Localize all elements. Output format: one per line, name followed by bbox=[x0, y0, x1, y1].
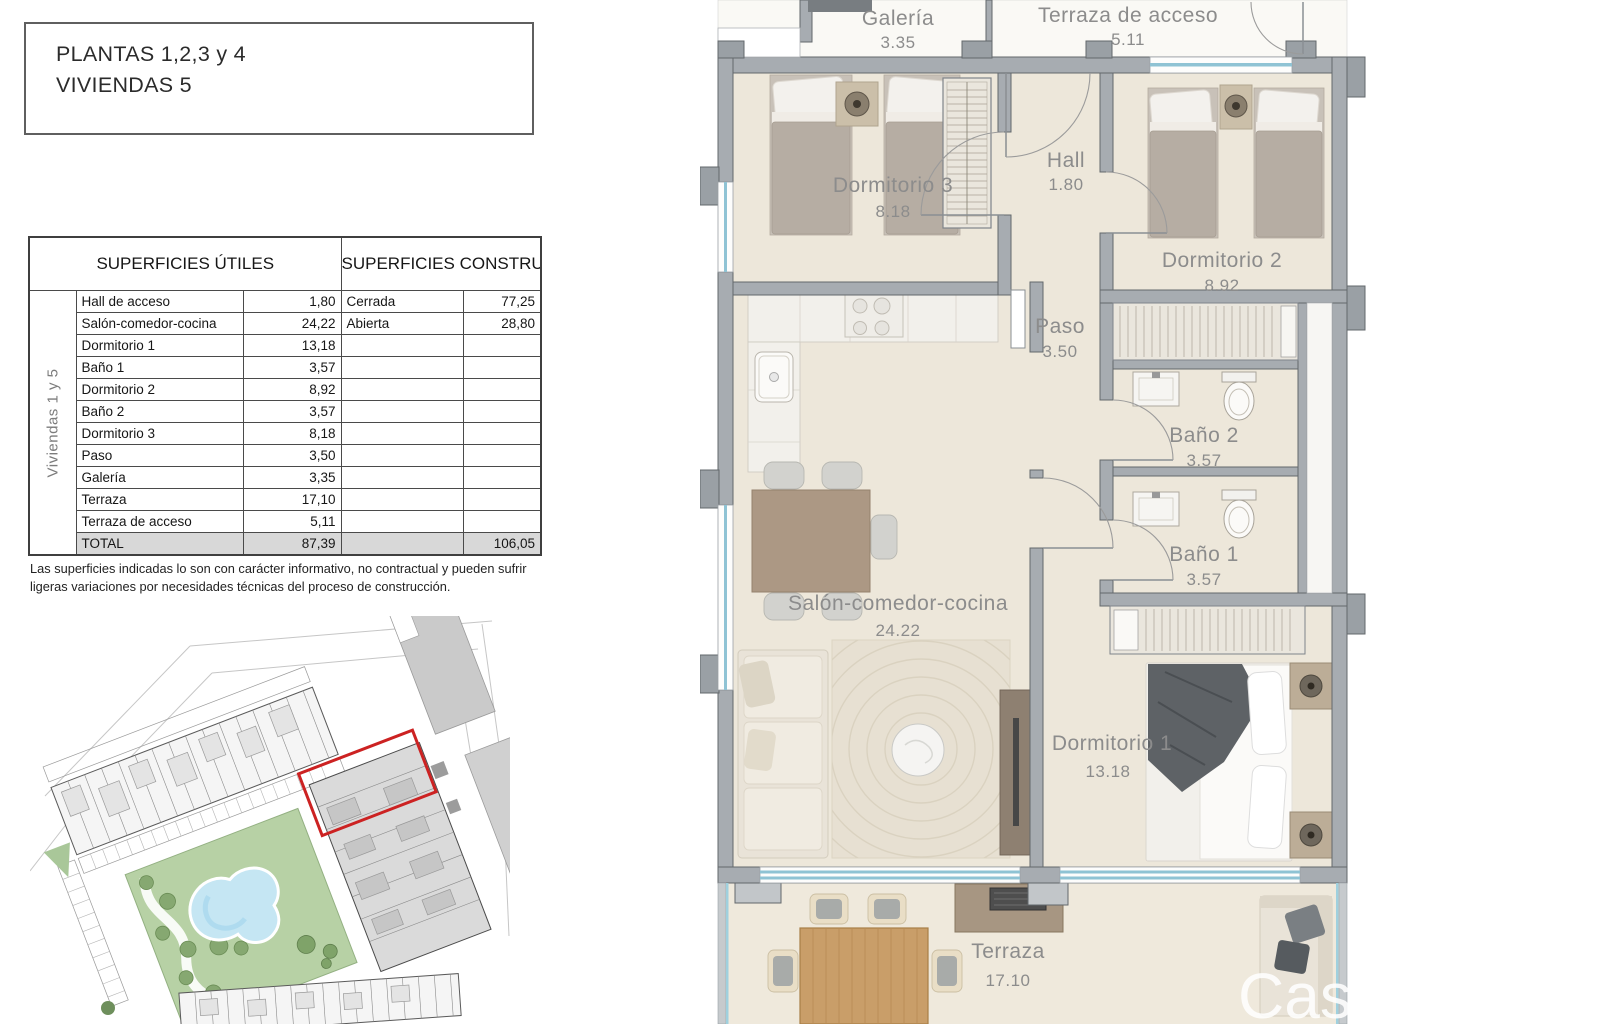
wardrobe-dormitorio3 bbox=[943, 78, 991, 228]
dining-table bbox=[752, 490, 870, 592]
row-name: Salón-comedor-cocina bbox=[76, 313, 243, 335]
label-terraza-acceso: Terraza de acceso bbox=[1038, 4, 1218, 27]
row-name: Terraza de acceso bbox=[76, 511, 243, 533]
row-name: Hall de acceso bbox=[76, 291, 243, 313]
row-cvalue bbox=[463, 489, 541, 511]
value-bano2: 3.57 bbox=[1186, 451, 1221, 470]
row-cname: Abierta bbox=[341, 313, 463, 335]
table-row: Baño 13,57 bbox=[29, 357, 541, 379]
label-galeria: Galería bbox=[862, 7, 934, 30]
row-cname bbox=[341, 423, 463, 445]
closet-dormitorio1 bbox=[1110, 606, 1305, 654]
row-value: 17,10 bbox=[243, 489, 341, 511]
row-cname bbox=[341, 511, 463, 533]
total-label: TOTAL bbox=[76, 533, 243, 556]
label-paso: Paso bbox=[1035, 315, 1085, 338]
row-name: Dormitorio 2 bbox=[76, 379, 243, 401]
title-line-1: PLANTAS 1,2,3 y 4 bbox=[56, 39, 532, 70]
row-cvalue: 77,25 bbox=[463, 291, 541, 313]
total-row: TOTAL 87,39 106,05 bbox=[29, 533, 541, 556]
row-cvalue bbox=[463, 467, 541, 489]
row-value: 3,35 bbox=[243, 467, 341, 489]
tv-unit bbox=[1000, 690, 1030, 855]
value-hall: 1.80 bbox=[1048, 175, 1083, 194]
row-value: 3,57 bbox=[243, 401, 341, 423]
row-name: Baño 2 bbox=[76, 401, 243, 423]
row-value: 13,18 bbox=[243, 335, 341, 357]
row-cvalue bbox=[463, 335, 541, 357]
side-label-cell: Viviendas 1 y 5 bbox=[29, 291, 76, 556]
label-terraza: Terraza bbox=[971, 940, 1045, 963]
row-cvalue bbox=[463, 511, 541, 533]
header-superficies-utiles: SUPERFICIES ÚTILES bbox=[29, 237, 341, 291]
table-row: Galería3,35 bbox=[29, 467, 541, 489]
value-dormitorio2: 8.92 bbox=[1204, 276, 1239, 295]
label-dormitorio1: Dormitorio 1 bbox=[1052, 732, 1172, 755]
terrace-table bbox=[800, 928, 928, 1024]
row-cvalue bbox=[463, 445, 541, 467]
row-cname bbox=[341, 401, 463, 423]
row-value: 24,22 bbox=[243, 313, 341, 335]
value-galeria: 3.35 bbox=[880, 33, 915, 52]
table-header-row: SUPERFICIES ÚTILES SUPERFICIES CONSTRUID… bbox=[29, 237, 541, 291]
areas-table: SUPERFICIES ÚTILES SUPERFICIES CONSTRUID… bbox=[28, 236, 542, 556]
sliding-door bbox=[760, 867, 1020, 883]
row-cname bbox=[341, 357, 463, 379]
row-cvalue bbox=[463, 357, 541, 379]
viviendas-side-label: Viviendas 1 y 5 bbox=[44, 368, 61, 477]
label-hall: Hall bbox=[1047, 149, 1085, 172]
row-name: Dormitorio 1 bbox=[76, 335, 243, 357]
row-cvalue bbox=[463, 423, 541, 445]
value-paso: 3.50 bbox=[1042, 342, 1077, 361]
toilet bbox=[1222, 490, 1256, 500]
table-row: Baño 23,57 bbox=[29, 401, 541, 423]
row-value: 3,50 bbox=[243, 445, 341, 467]
plan-title-box: PLANTAS 1,2,3 y 4 VIVIENDAS 5 bbox=[24, 22, 534, 135]
row-cvalue bbox=[463, 401, 541, 423]
total-empty-cell bbox=[341, 533, 463, 556]
row-cname: Cerrada bbox=[341, 291, 463, 313]
row-value: 1,80 bbox=[243, 291, 341, 313]
value-bano1: 3.57 bbox=[1186, 570, 1221, 589]
living-sofa bbox=[738, 650, 828, 858]
table-row: Salón-comedor-cocina24,22Abierta28,80 bbox=[29, 313, 541, 335]
row-cname bbox=[341, 467, 463, 489]
row-cname bbox=[341, 489, 463, 511]
title-line-2: VIVIENDAS 5 bbox=[56, 70, 532, 101]
table-row: Viviendas 1 y 5 Hall de acceso 1,80 Cerr… bbox=[29, 291, 541, 313]
row-name: Dormitorio 3 bbox=[76, 423, 243, 445]
sliding-door bbox=[1060, 867, 1300, 883]
row-cname bbox=[341, 335, 463, 357]
label-dormitorio2: Dormitorio 2 bbox=[1162, 249, 1282, 272]
value-salon: 24.22 bbox=[875, 621, 920, 640]
label-bano2: Baño 2 bbox=[1169, 424, 1239, 447]
row-value: 8,18 bbox=[243, 423, 341, 445]
label-dormitorio3: Dormitorio 3 bbox=[833, 174, 953, 197]
site-plan bbox=[30, 616, 510, 1024]
coffee-table bbox=[892, 724, 944, 776]
total-construidas-value: 106,05 bbox=[463, 533, 541, 556]
row-cvalue: 28,80 bbox=[463, 313, 541, 335]
label-bano1: Baño 1 bbox=[1169, 543, 1239, 566]
value-terraza-acceso: 5.11 bbox=[1111, 30, 1145, 49]
value-dormitorio3: 8.18 bbox=[875, 202, 910, 221]
row-value: 3,57 bbox=[243, 357, 341, 379]
table-row: Dormitorio 38,18 bbox=[29, 423, 541, 445]
row-name: Terraza bbox=[76, 489, 243, 511]
total-utiles-value: 87,39 bbox=[243, 533, 341, 556]
table-row: Paso3,50 bbox=[29, 445, 541, 467]
label-salon: Salón-comedor-cocina bbox=[788, 592, 1008, 615]
toilet bbox=[1222, 372, 1256, 382]
table-row: Terraza17,10 bbox=[29, 489, 541, 511]
floor-plan: Galería 3.35 Terraza de acceso 5.11 Dorm… bbox=[700, 0, 1600, 1024]
wardrobe-dormitorio2 bbox=[1113, 303, 1298, 360]
duct-void bbox=[1307, 303, 1332, 593]
tv-screen bbox=[1013, 718, 1019, 826]
value-terraza: 17.10 bbox=[985, 971, 1030, 990]
row-name: Baño 1 bbox=[76, 357, 243, 379]
tree-icon bbox=[101, 1001, 115, 1015]
row-value: 8,92 bbox=[243, 379, 341, 401]
table-row: Terraza de acceso5,11 bbox=[29, 511, 541, 533]
table-row: Dormitorio 113,18 bbox=[29, 335, 541, 357]
table-row: Dormitorio 28,92 bbox=[29, 379, 541, 401]
row-cvalue bbox=[463, 379, 541, 401]
row-name: Galería bbox=[76, 467, 243, 489]
watermark: Cas bbox=[1238, 960, 1352, 1024]
row-name: Paso bbox=[76, 445, 243, 467]
open-door-leaf bbox=[1011, 290, 1025, 348]
row-value: 5,11 bbox=[243, 511, 341, 533]
disclaimer-text: Las superficies indicadas lo son con car… bbox=[30, 560, 548, 596]
row-cname bbox=[341, 445, 463, 467]
row-cname bbox=[341, 379, 463, 401]
header-superficies-construidas: SUPERFICIES CONSTRUIDAS bbox=[341, 237, 541, 291]
value-dormitorio1: 13.18 bbox=[1085, 762, 1130, 781]
